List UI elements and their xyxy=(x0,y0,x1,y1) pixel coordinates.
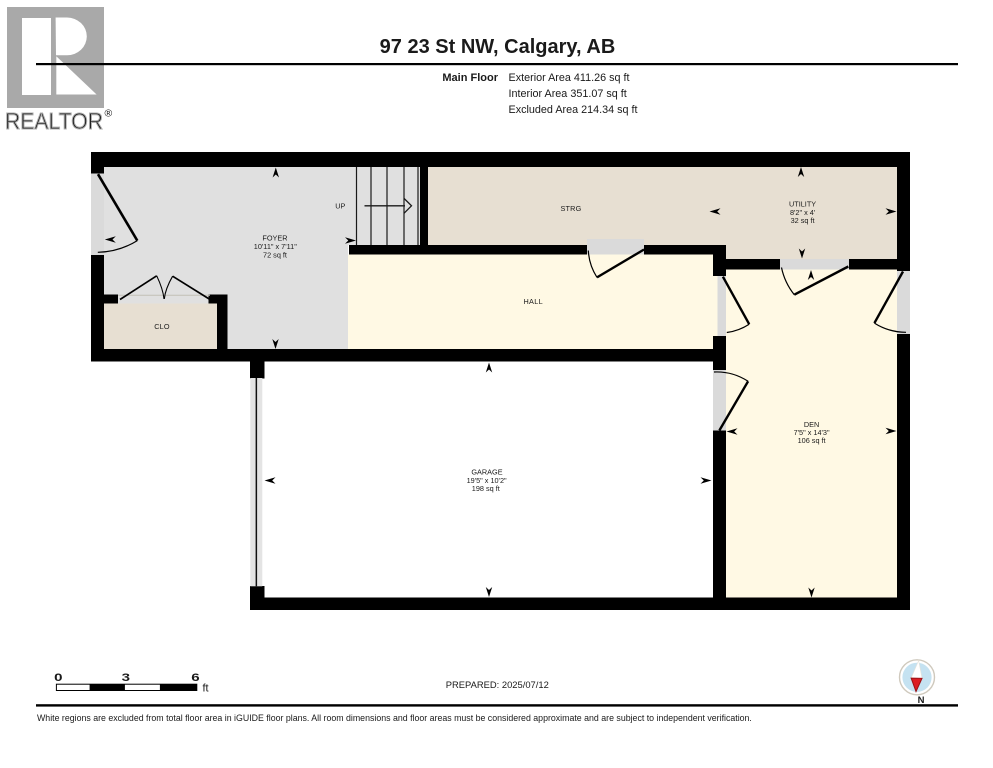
svg-text:106 sq ft: 106 sq ft xyxy=(798,436,826,445)
svg-text:®: ® xyxy=(105,108,113,120)
svg-text:3: 3 xyxy=(122,672,130,684)
svg-text:PREPARED: 2025/07/12: PREPARED: 2025/07/12 xyxy=(446,679,549,690)
svg-text:White regions are excluded fro: White regions are excluded from total fl… xyxy=(37,713,752,723)
svg-text:Excluded Area 214.34 sq ft: Excluded Area 214.34 sq ft xyxy=(509,104,638,116)
svg-text:32 sq ft: 32 sq ft xyxy=(791,216,815,225)
svg-text:6: 6 xyxy=(191,672,199,684)
svg-text:FOYER: FOYER xyxy=(262,233,287,242)
svg-text:198 sq ft: 198 sq ft xyxy=(472,484,500,493)
svg-text:0: 0 xyxy=(54,672,62,684)
svg-text:REALTOR: REALTOR xyxy=(5,108,103,134)
svg-text:CLO: CLO xyxy=(154,322,170,331)
svg-text:72 sq ft: 72 sq ft xyxy=(263,251,287,260)
svg-text:UP: UP xyxy=(335,202,345,211)
svg-text:HALL: HALL xyxy=(523,297,542,306)
svg-text:97 23 St NW, Calgary, AB: 97 23 St NW, Calgary, AB xyxy=(380,36,616,58)
svg-text:Exterior Area 411.26 sq ft: Exterior Area 411.26 sq ft xyxy=(509,72,630,84)
svg-text:Interior Area 351.07 sq ft: Interior Area 351.07 sq ft xyxy=(509,88,627,100)
svg-text:ft: ft xyxy=(203,682,209,694)
svg-text:STRG: STRG xyxy=(560,204,581,213)
svg-text:Main Floor: Main Floor xyxy=(442,72,498,84)
